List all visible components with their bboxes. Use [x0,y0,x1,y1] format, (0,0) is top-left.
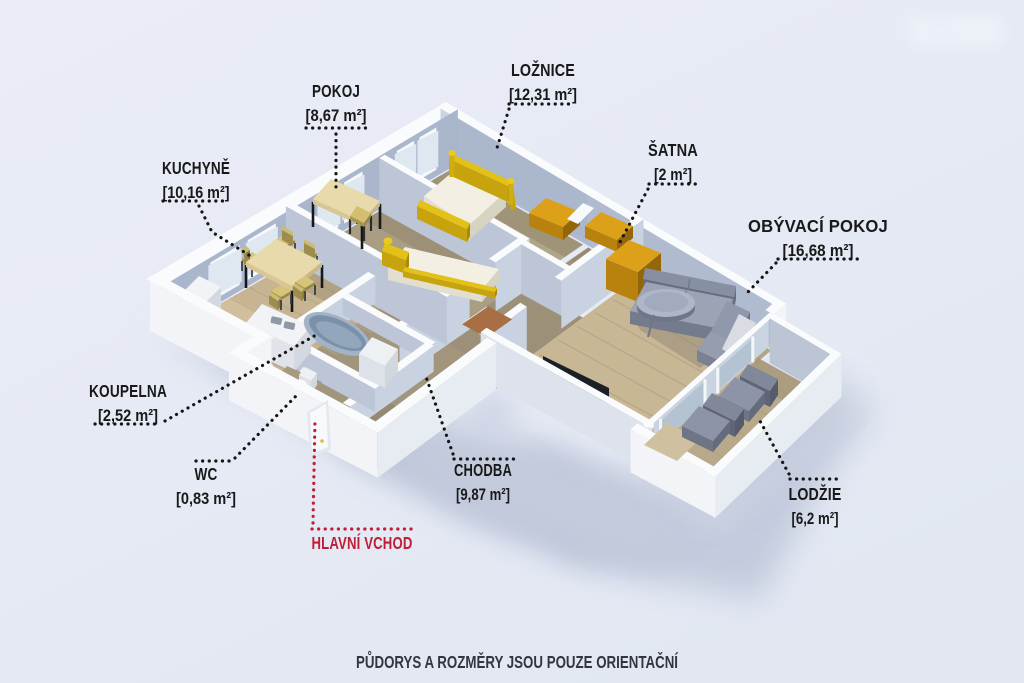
svg-text:[12,31 m²]: [12,31 m²] [509,86,577,104]
svg-text:HLAVNÍ VCHOD: HLAVNÍ VCHOD [312,532,413,553]
svg-text:POKOJ: POKOJ [312,81,360,101]
svg-text:[8,67 m²]: [8,67 m²] [306,107,367,125]
svg-text:[2,52 m²]: [2,52 m²] [98,407,158,425]
svg-text:[0,83 m²]: [0,83 m²] [176,490,236,508]
svg-text:PŮDORYS A ROZMĚRY JSOU POUZE O: PŮDORYS A ROZMĚRY JSOU POUZE ORIENTAČNÍ [356,650,679,672]
svg-text:[2 m²]: [2 m²] [654,166,692,184]
svg-text:[10,16 m²]: [10,16 m²] [163,184,230,202]
svg-text:KOUPELNA: KOUPELNA [89,381,167,401]
svg-text:[9,87 m²]: [9,87 m²] [456,486,510,504]
svg-text:LODŽIE: LODŽIE [789,483,842,504]
svg-text:OBÝVACÍ POKOJ: OBÝVACÍ POKOJ [748,215,888,236]
svg-text:LOŽNICE: LOŽNICE [511,59,575,80]
svg-text:WC: WC [195,464,218,484]
svg-text:ŠATNA: ŠATNA [648,139,698,160]
svg-text:[6,2 m²]: [6,2 m²] [792,510,839,528]
svg-text:KUCHYNĚ: KUCHYNĚ [162,157,230,178]
svg-text:[16,68 m²]: [16,68 m²] [783,242,854,260]
svg-text:CHODBA: CHODBA [454,460,512,480]
